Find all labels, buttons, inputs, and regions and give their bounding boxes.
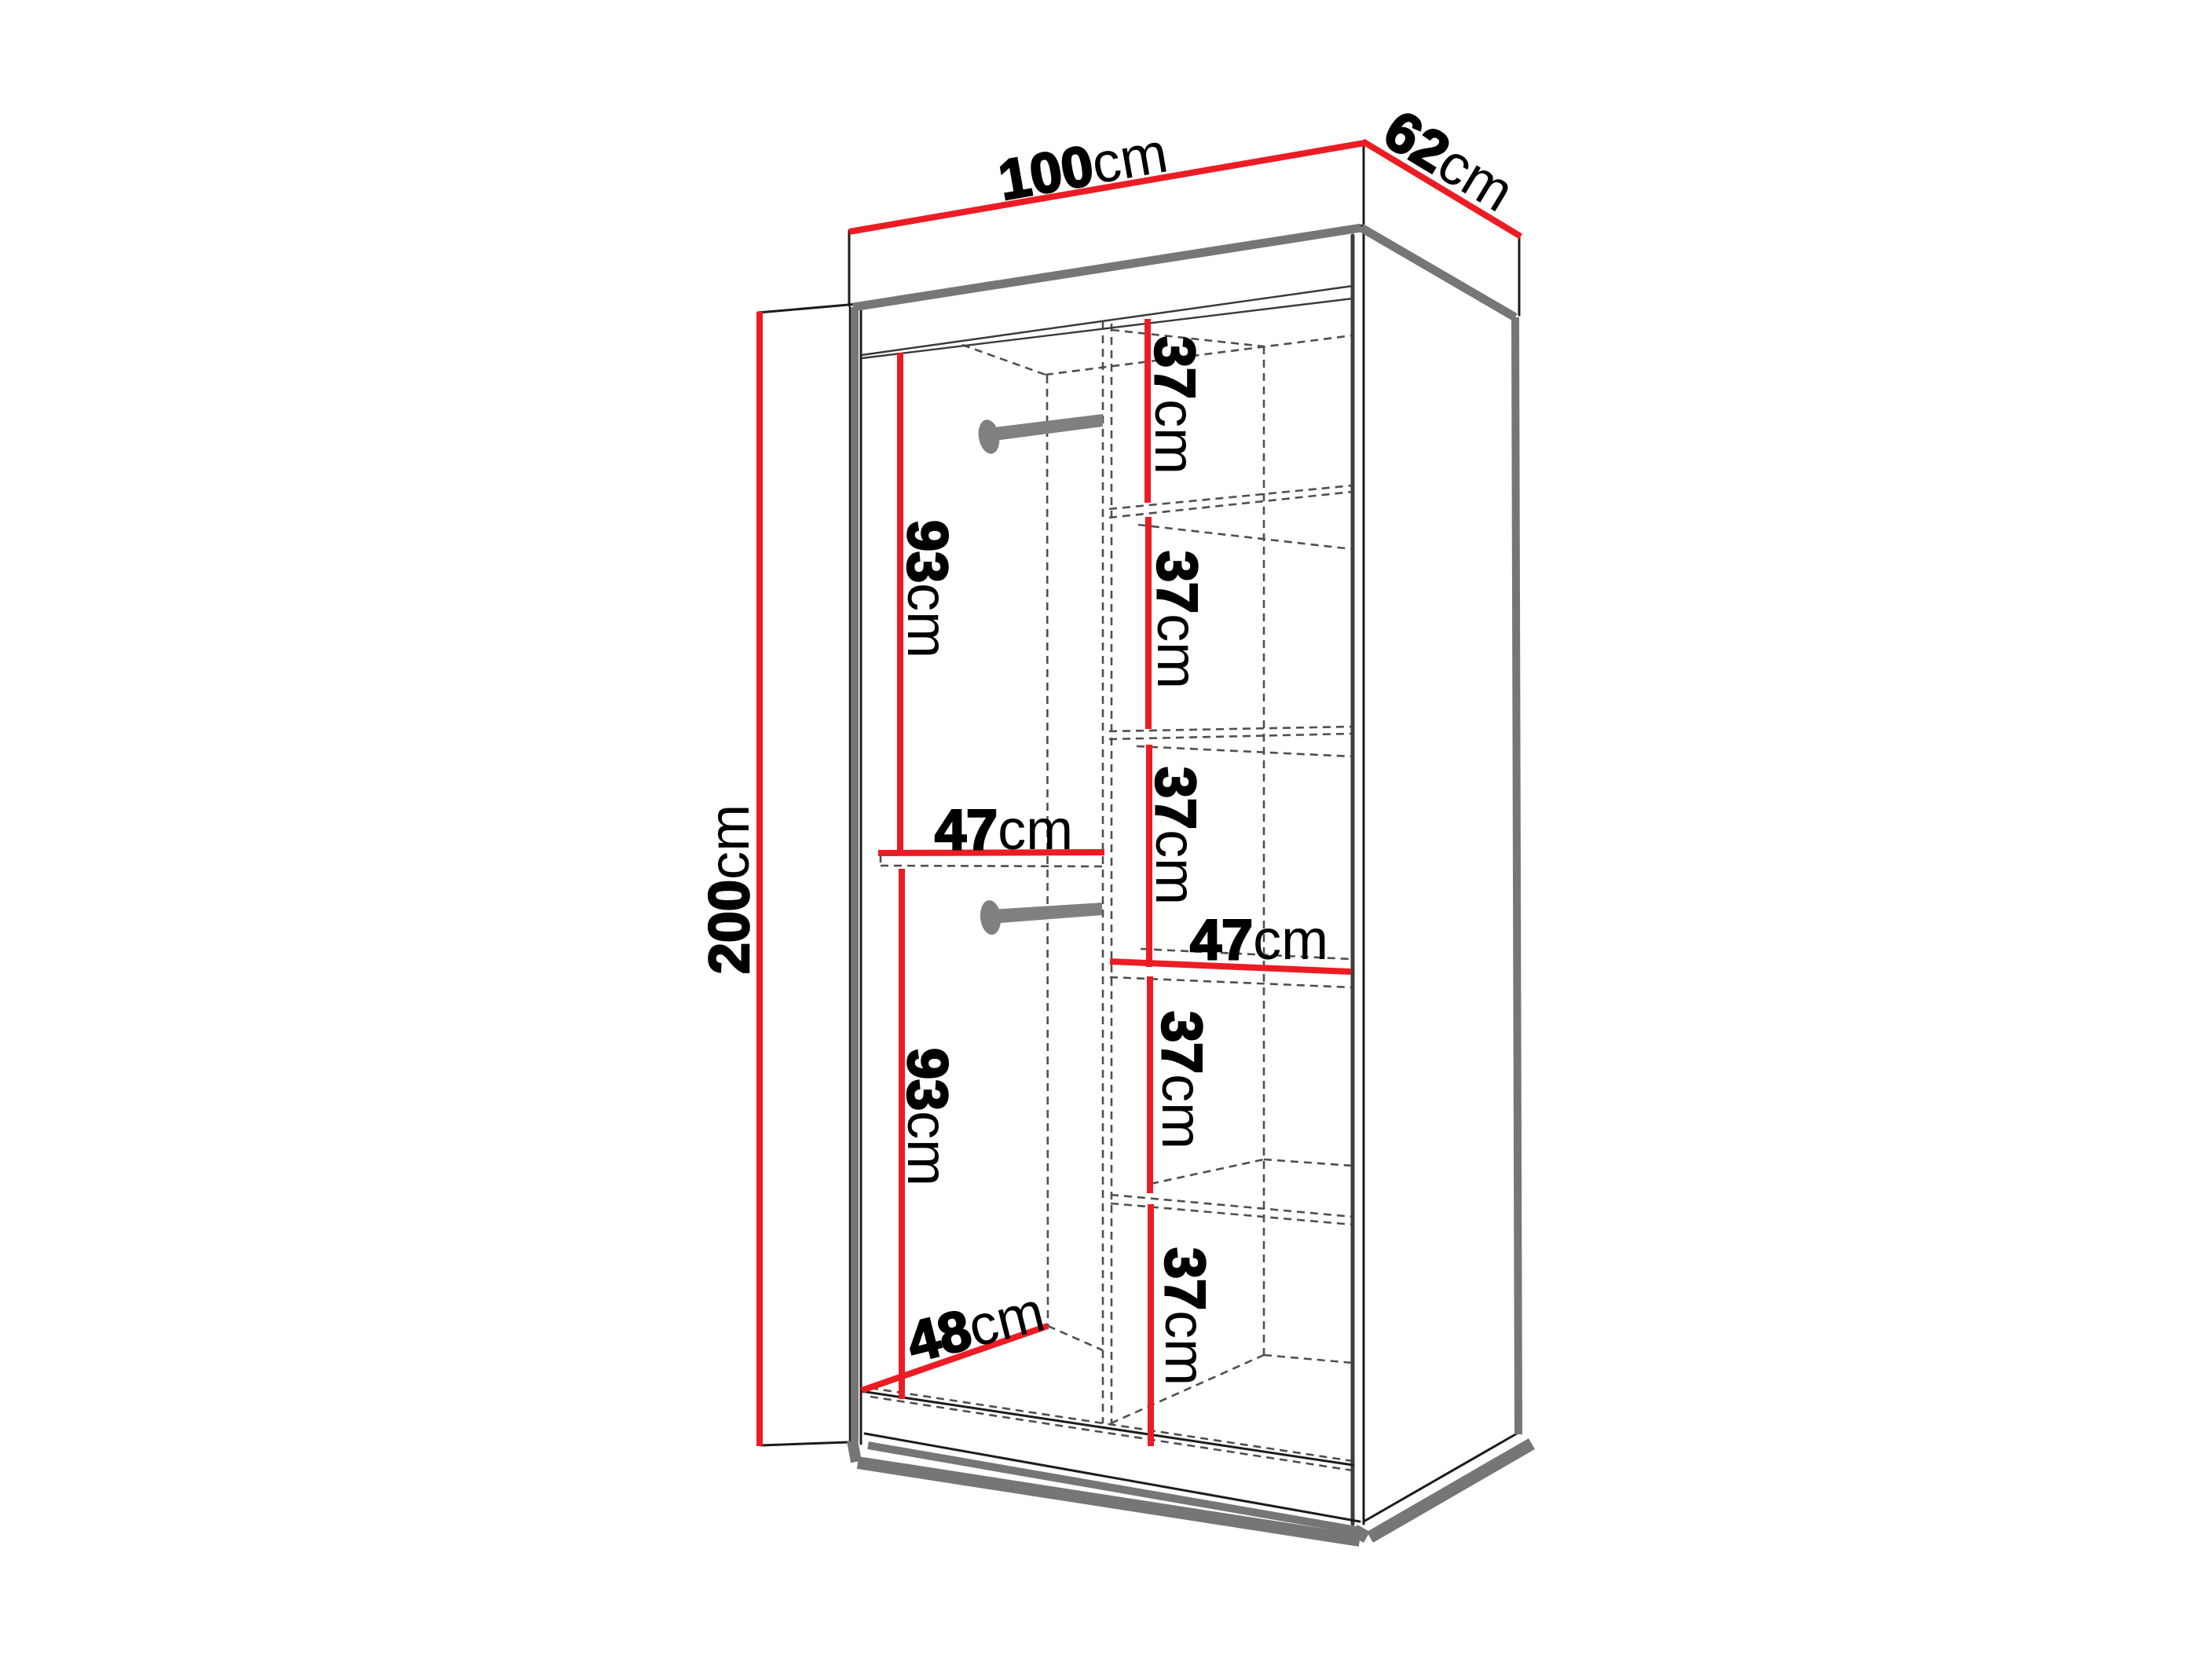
svg-text:93cm: 93cm	[895, 520, 958, 658]
svg-text:37cm: 37cm	[1153, 1247, 1216, 1386]
svg-text:37cm: 37cm	[1143, 336, 1206, 474]
svg-text:47cm: 47cm	[935, 799, 1073, 862]
svg-text:37cm: 37cm	[1150, 1011, 1213, 1149]
svg-text:93cm: 93cm	[895, 1048, 958, 1186]
svg-text:37cm: 37cm	[1144, 767, 1207, 905]
svg-text:47cm: 47cm	[1190, 909, 1328, 972]
svg-text:200cm: 200cm	[698, 804, 761, 974]
svg-text:37cm: 37cm	[1145, 551, 1208, 689]
